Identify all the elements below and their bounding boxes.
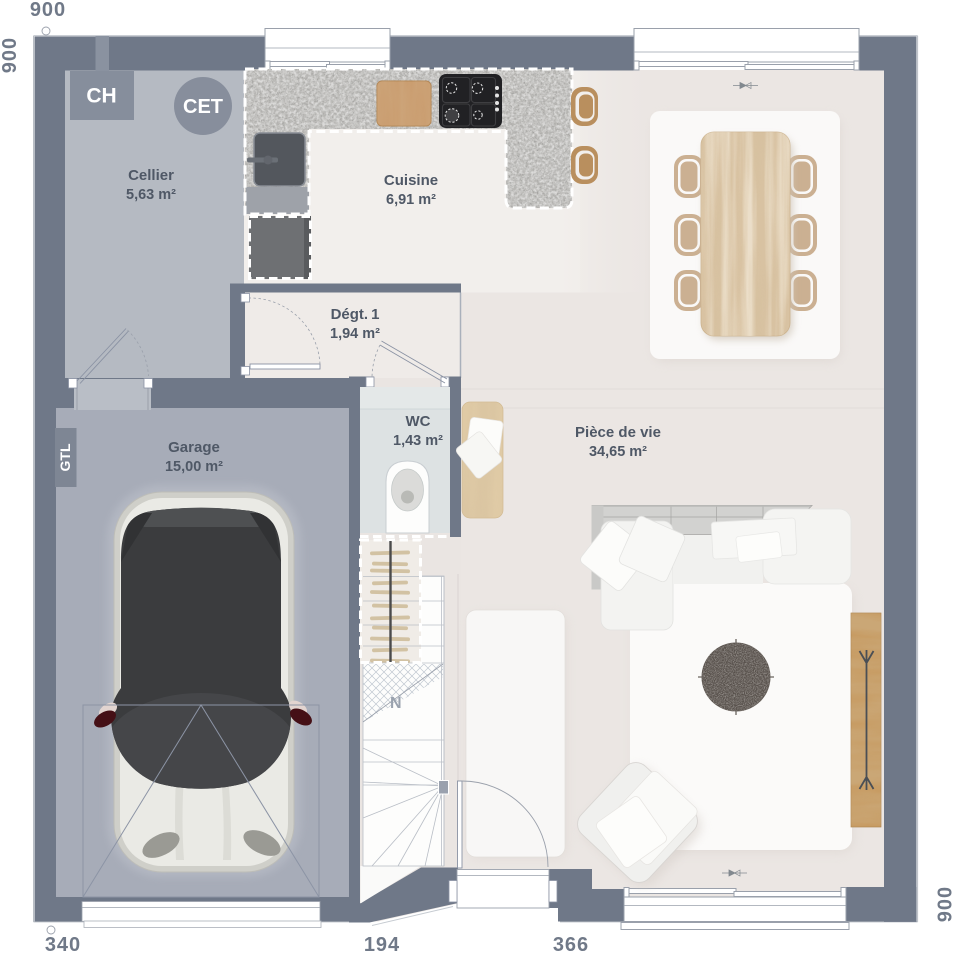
- svg-text:Dégt. 1: Dégt. 1: [331, 306, 380, 323]
- svg-text:15,00 m²: 15,00 m²: [165, 459, 223, 475]
- svg-text:Garage: Garage: [168, 439, 220, 456]
- svg-text:900: 900: [0, 37, 21, 73]
- svg-text:34,65 m²: 34,65 m²: [589, 444, 647, 460]
- svg-text:Cellier: Cellier: [128, 167, 174, 184]
- svg-text:366: 366: [553, 934, 589, 956]
- svg-text:6,91 m²: 6,91 m²: [386, 192, 436, 208]
- svg-text:194: 194: [364, 934, 400, 956]
- svg-text:Pièce de vie: Pièce de vie: [575, 424, 661, 441]
- svg-text:GTL: GTL: [57, 443, 73, 471]
- svg-text:CH: CH: [86, 85, 116, 108]
- svg-text:5,63 m²: 5,63 m²: [126, 187, 176, 203]
- svg-text:340: 340: [45, 934, 81, 956]
- svg-text:WC: WC: [406, 413, 431, 430]
- svg-text:1,43 m²: 1,43 m²: [393, 433, 443, 449]
- svg-text:N: N: [390, 695, 402, 712]
- svg-text:CET: CET: [183, 96, 223, 118]
- svg-text:1,94 m²: 1,94 m²: [330, 326, 380, 342]
- svg-text:900: 900: [30, 0, 66, 21]
- svg-text:Cuisine: Cuisine: [384, 172, 438, 189]
- svg-text:900: 900: [934, 886, 956, 922]
